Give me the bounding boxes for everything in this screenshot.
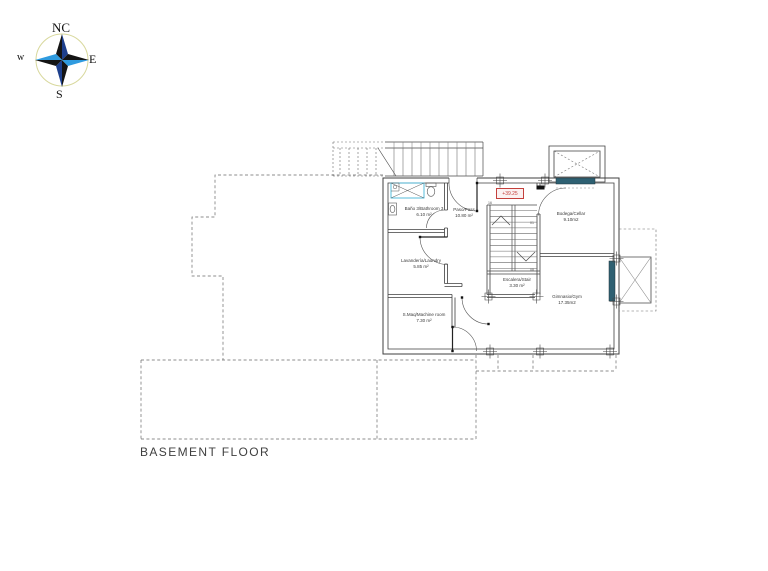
- toilet-icon: [426, 183, 436, 196]
- room-label-cellar: Bodega/Cellar 9.10m2: [557, 211, 586, 223]
- room-area: 5.85 m²: [401, 264, 441, 270]
- room-name: Escalera/Stair: [503, 277, 531, 282]
- room-name: Gimnasio/Gym: [552, 294, 582, 299]
- floor-plan-canvas: NC E S w +39.25 Baño 3/Bathroom 3 6.10 m…: [0, 0, 768, 571]
- room-label-gym: Gimnasio/Gym 17.35m2: [552, 294, 582, 306]
- internal-staircase: [487, 205, 540, 274]
- compass-label-south: S: [56, 87, 63, 102]
- room-label-machine-room: S.Maq/Machine room 7.30 m²: [403, 312, 446, 324]
- window-top: [556, 178, 595, 184]
- compass-label-west: w: [17, 52, 24, 63]
- stair-mark: 08: [530, 268, 534, 272]
- gym-door-arc: [462, 298, 489, 325]
- room-area: 10.80 m²: [453, 213, 475, 219]
- stair-mark: 01: [530, 221, 534, 225]
- compass-label-north: NC: [52, 20, 70, 36]
- room-area: 17.35m2: [552, 300, 582, 306]
- room-label-bathroom: Baño 3/Bathroom 3 6.10 m²: [405, 206, 444, 218]
- room-label-pass: Paso/Pass 10.80 m²: [453, 207, 475, 219]
- room-name: S.Maq/Machine room: [403, 312, 446, 317]
- window-well: [619, 229, 656, 311]
- room-name: Paso/Pass: [453, 207, 475, 212]
- stair-direction-chevrons: [492, 216, 535, 261]
- sink-icon: [389, 203, 397, 215]
- room-name: Lavandería/Laundry: [401, 258, 441, 263]
- room-area: 6.10 m²: [405, 212, 444, 218]
- window-right: [609, 261, 615, 301]
- column-markers: [482, 174, 624, 359]
- room-name: Bodega/Cellar: [557, 211, 586, 216]
- room-area: 9.10m2: [557, 217, 586, 223]
- terrace-dashed-outline: [141, 175, 616, 439]
- plan-linework: [0, 0, 768, 571]
- external-staircase: [333, 142, 483, 176]
- room-area: 3.30 m²: [503, 283, 531, 289]
- shower-head-icon: [393, 185, 397, 189]
- compass-label-east: E: [89, 52, 96, 67]
- compass-rose-icon: [35, 34, 89, 87]
- room-area: 7.30 m²: [403, 318, 446, 324]
- machine-door-arc: [453, 327, 477, 351]
- page-title: BASEMENT FLOOR: [140, 445, 270, 459]
- elevation-marker: +39.25: [496, 188, 524, 199]
- room-name: Baño 3/Bathroom 3: [405, 206, 444, 211]
- room-label-laundry: Lavandería/Laundry 5.85 m²: [401, 258, 441, 270]
- room-label-stair: Escalera/Stair 3.30 m²: [503, 277, 531, 289]
- stair-mark: 16: [488, 201, 492, 205]
